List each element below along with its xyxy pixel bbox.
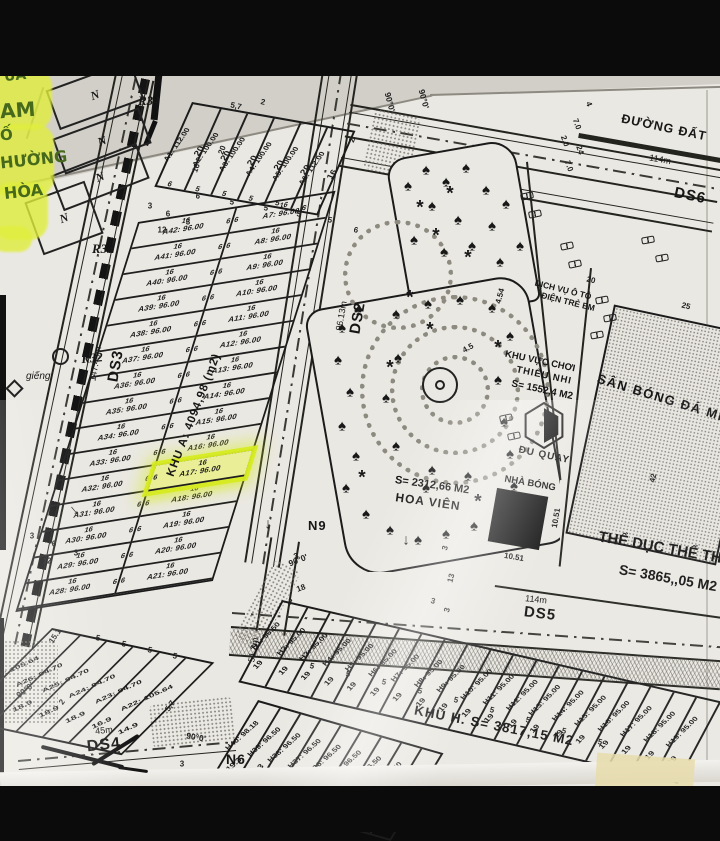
shrub-icon: * (494, 339, 501, 358)
plot-width: 5 (247, 194, 255, 203)
tree-icon: ♠ (482, 183, 490, 198)
shrub-icon: * (386, 359, 393, 378)
tree-icon: ♠ (342, 481, 350, 496)
tree-icon: ♠ (414, 533, 422, 548)
tree-icon: ♠ (464, 469, 472, 484)
letterbox-bottom (0, 786, 720, 832)
direction-arrow-icon: ↓ (264, 516, 272, 533)
tree-icon: ♠ (352, 449, 360, 464)
dimension-label: 3 (30, 532, 34, 541)
handwriting-line: Ố (0, 126, 13, 145)
dimension-label: 6 (166, 210, 170, 219)
dimension-label: 3 (74, 549, 78, 558)
handwriting-line: AM (0, 97, 36, 123)
dimension-label: 6 (52, 540, 56, 549)
tree-icon: ♠ (516, 239, 524, 254)
shrub-icon: * (464, 249, 471, 268)
tree-icon: ♠ (470, 519, 478, 534)
plot-width: 19 (574, 733, 588, 745)
shrub-icon: * (358, 469, 365, 488)
highlighter-stroke (0, 226, 32, 252)
road-ds5-name: DS5 (523, 604, 557, 624)
tree-icon: ♠ (440, 245, 448, 260)
tree-icon: ♠ (456, 293, 464, 308)
tree-icon: ♠ (386, 523, 394, 538)
ref-label-r34: R34 (138, 94, 160, 108)
tree-icon: ♠ (462, 161, 470, 176)
shrub-icon: * (406, 289, 413, 308)
dimension-label: 3 (148, 202, 152, 211)
tree-icon: ♠ (410, 233, 418, 248)
plot-width: 19 (367, 686, 381, 698)
junction-n6-label: N6 (226, 752, 246, 767)
tree-icon: ♠ (428, 463, 436, 478)
scan-edge-black (0, 295, 6, 550)
tree-icon: ♠ (506, 329, 514, 344)
tree-icon: ♠ (404, 179, 412, 194)
parcel-n-label: N (88, 86, 101, 103)
shrub-icon: * (416, 199, 423, 218)
ref-label-r33: R33 (92, 242, 114, 256)
plot-width: 18.9 (0, 693, 5, 708)
plot-width: 19 (299, 670, 313, 682)
dimension-label: 12 (158, 226, 167, 235)
tree-icon: ♠ (496, 255, 504, 270)
tree-icon: ♠ (442, 527, 450, 542)
junction-n9-label: N9 (308, 519, 327, 533)
tree-icon: ♠ (422, 163, 430, 178)
tree-icon: ♠ (488, 219, 496, 234)
dimension-label: 3 (180, 760, 184, 769)
scanned-plot-map-photo: { "handwriting": {"l1":"ỦA","l2":"AM","l… (0, 0, 720, 832)
tree-icon: ♠ (506, 447, 514, 462)
tree-icon: ♠ (496, 505, 504, 520)
plot-width: 5 (220, 189, 228, 198)
tree-icon: ♠ (362, 507, 370, 522)
shrub-icon: * (432, 227, 439, 246)
shrub-icon: * (474, 493, 481, 512)
shrub-icon: * (426, 321, 433, 340)
plot-width: 18.9 (64, 710, 86, 725)
letterbox-top (0, 0, 720, 76)
dimension-label: 3 (186, 218, 190, 227)
plot-width: 19 (390, 691, 404, 703)
tree-icon: ♠ (392, 307, 400, 322)
well-icon (52, 348, 69, 365)
plot-width: 18.9 (38, 704, 60, 719)
tree-icon: ♠ (382, 391, 390, 406)
park-fountain-center (435, 380, 445, 390)
tree-icon: ♠ (454, 213, 462, 228)
tree-icon: ♠ (338, 419, 346, 434)
handwriting-line: HÒA (3, 180, 44, 203)
tree-icon: ♠ (334, 353, 342, 368)
dimension-label: 42 (648, 473, 659, 484)
plot-width: 19 (322, 675, 336, 687)
plot-width: 18.9 (11, 699, 33, 714)
dimension-label: 12 (43, 557, 52, 566)
well-label: giếng (26, 372, 50, 383)
shrub-icon: * (446, 185, 453, 204)
plot-width: 19 (276, 665, 290, 677)
tree-icon: ♠ (346, 385, 354, 400)
tree-icon: ♠ (494, 373, 502, 388)
plot-width: 6 (166, 179, 174, 188)
tree-icon: ♠ (394, 351, 402, 366)
plot-width: 19 (345, 680, 359, 692)
tree-icon: ♠ (424, 297, 432, 312)
tree-icon: ♠ (428, 199, 436, 214)
direction-arrow-icon: ↓ (402, 532, 410, 549)
tree-icon: ♠ (392, 439, 400, 454)
tree-icon: ♠ (502, 197, 510, 212)
